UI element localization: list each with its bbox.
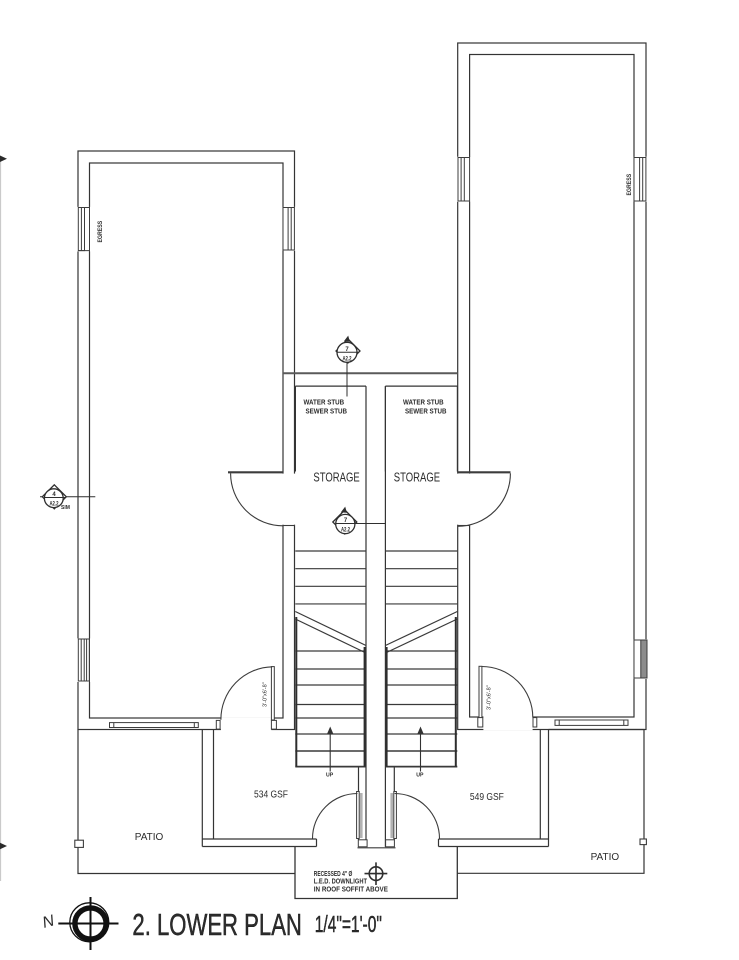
svg-text:2. LOWER PLAN: 2. LOWER PLAN [132, 907, 301, 941]
svg-text:UP: UP [326, 773, 334, 779]
svg-text:L.E.D. DOWNLIGHT: L.E.D. DOWNLIGHT [314, 878, 367, 886]
svg-text:SEWER STUB: SEWER STUB [306, 408, 347, 416]
svg-text:PATIO: PATIO [135, 832, 164, 843]
svg-text:EGRESS: EGRESS [98, 221, 104, 243]
svg-text:A2.2: A2.2 [49, 501, 58, 508]
svg-text:SEWER STUB: SEWER STUB [405, 408, 446, 416]
svg-text:EGRESS: EGRESS [627, 174, 633, 196]
svg-text:1/4"=1'-0": 1/4"=1'-0" [315, 912, 382, 938]
svg-text:PATIO: PATIO [591, 852, 620, 863]
svg-text:SIM: SIM [61, 505, 70, 511]
svg-text:3'-0"x6'-8": 3'-0"x6'-8" [263, 682, 269, 707]
svg-text:UP: UP [416, 773, 424, 779]
svg-text:WATER STUB: WATER STUB [403, 399, 444, 407]
svg-text:A2.2: A2.2 [342, 356, 351, 363]
svg-text:IN ROOF SOFFIT ABOVE: IN ROOF SOFFIT ABOVE [314, 886, 389, 893]
svg-text:549 GSF: 549 GSF [470, 791, 504, 802]
svg-text:534 GSF: 534 GSF [254, 789, 288, 800]
svg-text:3'-0"x6'-8": 3'-0"x6'-8" [487, 685, 493, 710]
svg-text:WATER STUB: WATER STUB [304, 399, 345, 407]
svg-text:STORAGE: STORAGE [313, 471, 360, 485]
svg-text:A2.2: A2.2 [341, 527, 350, 534]
svg-text:STORAGE: STORAGE [394, 471, 441, 485]
svg-text:N: N [41, 912, 57, 932]
